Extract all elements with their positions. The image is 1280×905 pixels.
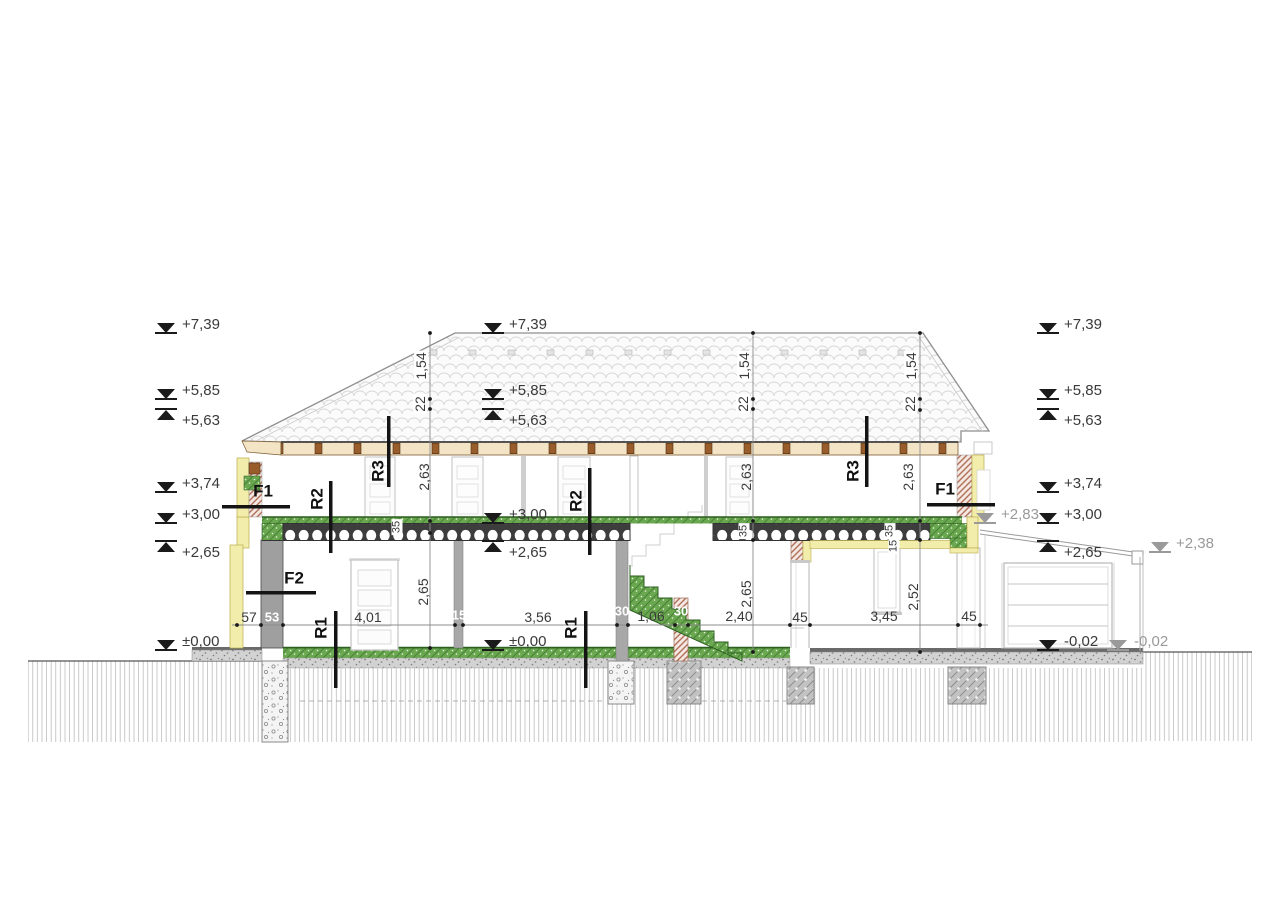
level-value: +3,74: [182, 475, 220, 492]
level-value: +7,39: [182, 316, 220, 333]
dim-text: 1,54: [414, 350, 428, 381]
carport-window: [872, 548, 902, 615]
dim-text: 2,65: [416, 578, 430, 605]
level-value: +3,00: [182, 506, 220, 523]
level-value: -0,02: [1064, 633, 1098, 650]
level-value: -0,02: [1134, 633, 1168, 650]
level-value: +5,85: [509, 382, 547, 399]
dim-text: 1,54: [737, 350, 751, 381]
dim-text: 2,63: [901, 463, 915, 490]
dim-text: 35: [739, 523, 750, 539]
detail-label-r1: R1: [563, 617, 580, 639]
level-value: +5,63: [1064, 412, 1102, 429]
gutter-right: [974, 442, 992, 454]
detail-label-f1: F1: [253, 483, 273, 500]
dim-text: 30: [674, 605, 688, 618]
level-value: +5,63: [182, 412, 220, 429]
carport-paving: [810, 648, 1143, 664]
dim-text: 45: [961, 609, 977, 623]
dim-text: 2,63: [417, 463, 431, 490]
dim-text: 35: [885, 523, 896, 539]
level-triangle-icon: [1039, 542, 1057, 552]
level-value: ±0,00: [182, 633, 219, 650]
level-triangle-icon: [157, 410, 175, 420]
level-value: +3,00: [1064, 506, 1102, 523]
level-value: +3,00: [509, 506, 547, 523]
ground-floor-door: [349, 558, 400, 650]
level-triangle-icon: [484, 410, 502, 420]
dim-text: 3,45: [870, 609, 897, 623]
dim-text: 22: [413, 394, 427, 414]
exterior-wall-right: [790, 540, 811, 648]
drawing-geometry: [0, 0, 1280, 905]
level-triangle-icon: [484, 542, 502, 552]
upper-stair-flight-outline: [632, 505, 702, 567]
ceiling-joist-band: [281, 442, 958, 455]
detail-label-f2: F2: [284, 570, 304, 587]
dim-text: 15: [889, 538, 900, 554]
dim-text: 2,65: [739, 580, 753, 607]
dim-text: 2,52: [906, 583, 920, 610]
level-value: +2,38: [1176, 535, 1214, 552]
detail-label-r3: R3: [845, 460, 862, 482]
dim-text: 2,63: [739, 463, 753, 490]
garage: [980, 530, 1143, 651]
detail-label-r2: R2: [309, 488, 326, 510]
dim-text: 15: [452, 609, 466, 622]
dim-text: 2,40: [725, 609, 752, 623]
section-drawing: +7,39 +5,85 +5,63 +3,74 +3,00 +2,65 ±0,0…: [0, 0, 1280, 905]
level-value: +5,85: [182, 382, 220, 399]
roof: [242, 333, 992, 455]
detail-label-f1: F1: [935, 481, 955, 498]
dim-text: 45: [792, 610, 808, 624]
level-value: +5,85: [1064, 382, 1102, 399]
dim-text: 22: [736, 394, 750, 414]
attic-partition-c: [704, 456, 708, 517]
eave-wedge-left: [242, 441, 281, 455]
dim-text: 1,54: [904, 350, 918, 381]
level-value: +7,39: [509, 316, 547, 333]
dim-text: 53: [265, 611, 279, 624]
detail-label-r3: R3: [370, 460, 387, 482]
partition-wall-15: [454, 540, 463, 648]
dim-text: 4,01: [354, 610, 381, 624]
dim-text: 3,56: [524, 610, 551, 624]
dim-text: 1,06: [637, 609, 664, 623]
stair-wall-30: [616, 540, 628, 661]
dim-text: 30: [615, 605, 629, 618]
level-triangle-icon: [157, 542, 175, 552]
level-value: +3,74: [1064, 475, 1102, 492]
dim-text: 35: [392, 519, 403, 535]
level-value: +2,65: [182, 544, 220, 561]
level-value: ±0,00: [509, 633, 546, 650]
detail-label-r1: R1: [313, 617, 330, 639]
attic-partition-b: [630, 456, 638, 517]
level-value: +5,63: [509, 412, 547, 429]
carport-column: [957, 548, 980, 648]
level-value: +2,65: [1064, 544, 1102, 561]
dim-text: 22: [903, 394, 917, 414]
dim-text: 57: [241, 610, 257, 624]
level-value: +2,83: [1001, 506, 1039, 523]
level-triangle-icon: [1039, 410, 1057, 420]
detail-label-r2: R2: [568, 490, 585, 512]
level-value: +7,39: [1064, 316, 1102, 333]
level-value: +2,65: [509, 544, 547, 561]
